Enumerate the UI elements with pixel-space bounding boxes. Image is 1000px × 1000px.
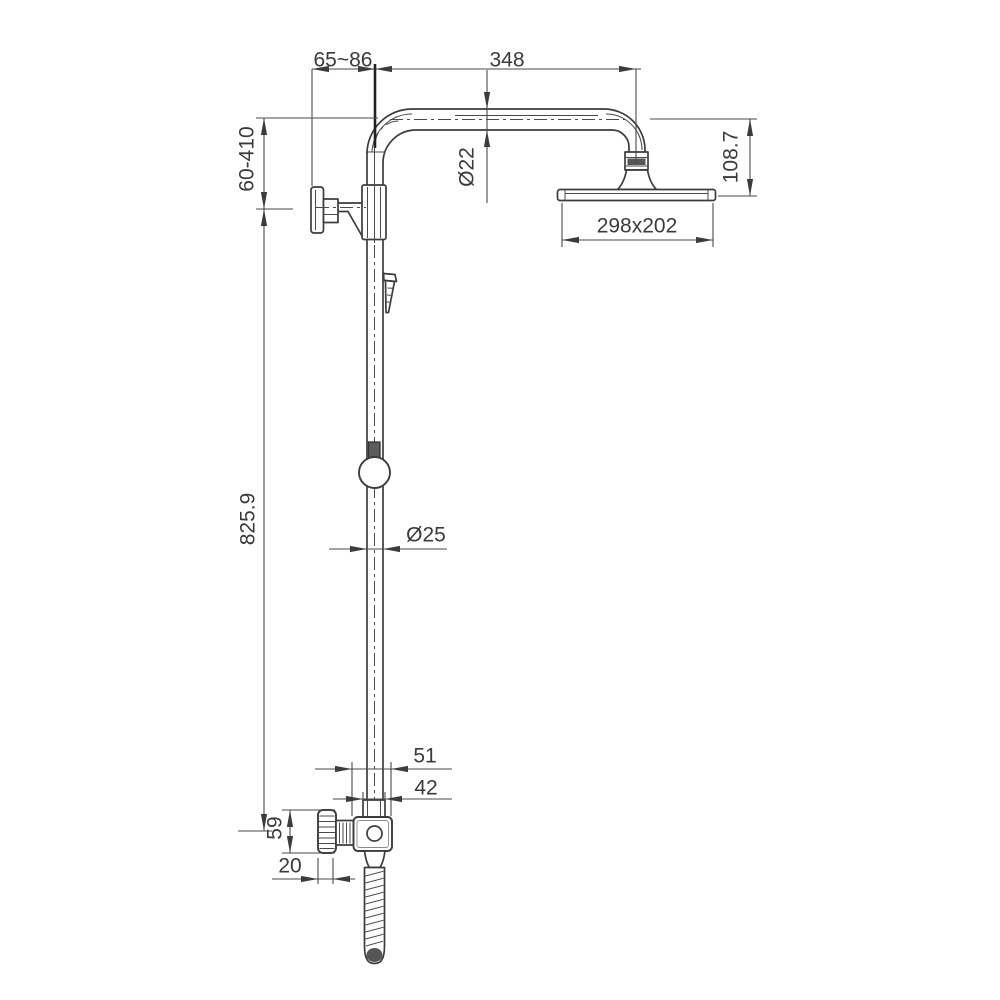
- label-bracket-range: 60-410: [236, 126, 259, 191]
- label-arm-length: 348: [489, 49, 524, 72]
- drawing-canvas: 65~86 348 60-410 Ø22 108.7 298x202 825.9…: [0, 0, 1000, 1000]
- bottom-collar: [363, 800, 385, 817]
- wall-flange: [311, 187, 324, 233]
- label-collar-width: 42: [414, 777, 437, 800]
- bracket-neck: [324, 199, 339, 223]
- label-head-drop: 108.7: [720, 131, 743, 184]
- shower-column-drawing: 65~86 348 60-410 Ø22 108.7 298x202 825.9…: [0, 0, 1000, 1000]
- knob-shaft: [336, 821, 354, 846]
- label-wall-offset: 65~86: [314, 49, 373, 72]
- slider-knob: [359, 457, 390, 488]
- label-column-height: 825.9: [237, 493, 260, 546]
- outlet-port: [367, 826, 382, 841]
- label-knob-depth: 20: [278, 855, 301, 878]
- label-column-diameter: Ø25: [406, 524, 446, 547]
- label-knob-height: 59: [264, 816, 287, 839]
- label-arm-diameter: Ø22: [456, 147, 479, 187]
- label-bracket-width: 51: [413, 745, 436, 768]
- label-head-size: 298x202: [597, 215, 678, 238]
- head-plate: [558, 190, 716, 201]
- hose-end-cap: [367, 948, 383, 962]
- hand-shower-hose: [365, 868, 385, 964]
- paper-background: [0, 0, 1000, 1000]
- hose-cone: [365, 851, 386, 868]
